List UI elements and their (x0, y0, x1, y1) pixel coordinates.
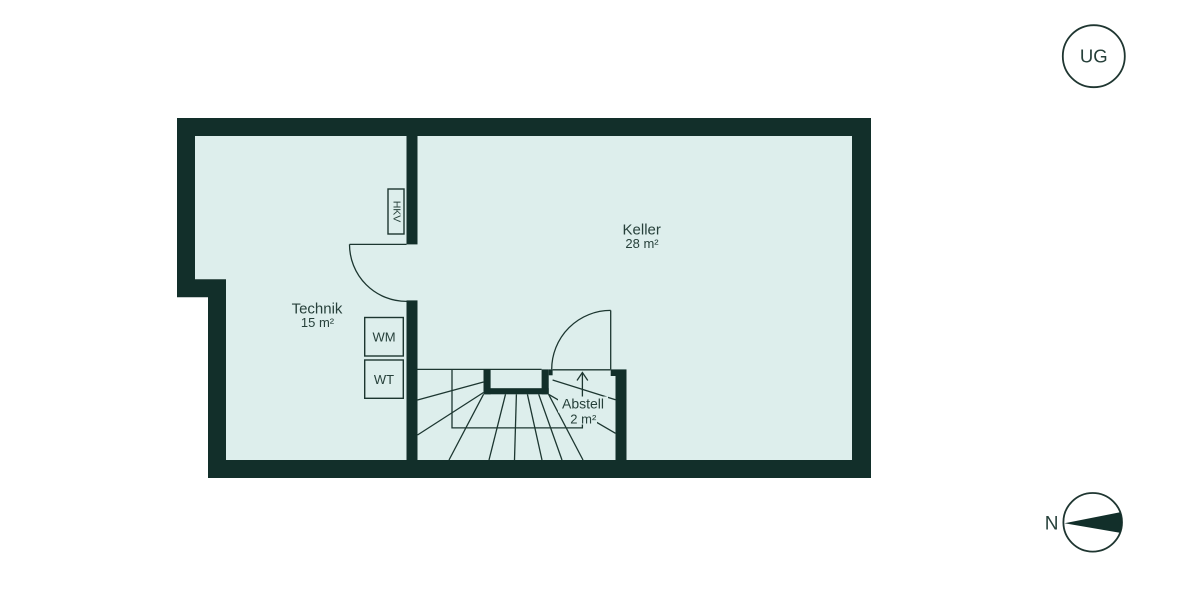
svg-text:HKV: HKV (390, 201, 402, 223)
svg-text:Abstell: Abstell (562, 396, 604, 412)
svg-text:28 m²: 28 m² (625, 236, 659, 251)
svg-text:UG: UG (1080, 46, 1108, 67)
svg-text:N: N (1045, 514, 1059, 535)
svg-text:2 m²: 2 m² (570, 411, 597, 426)
svg-text:15 m²: 15 m² (301, 315, 335, 330)
svg-text:WT: WT (374, 372, 394, 387)
svg-text:WM: WM (372, 330, 395, 345)
